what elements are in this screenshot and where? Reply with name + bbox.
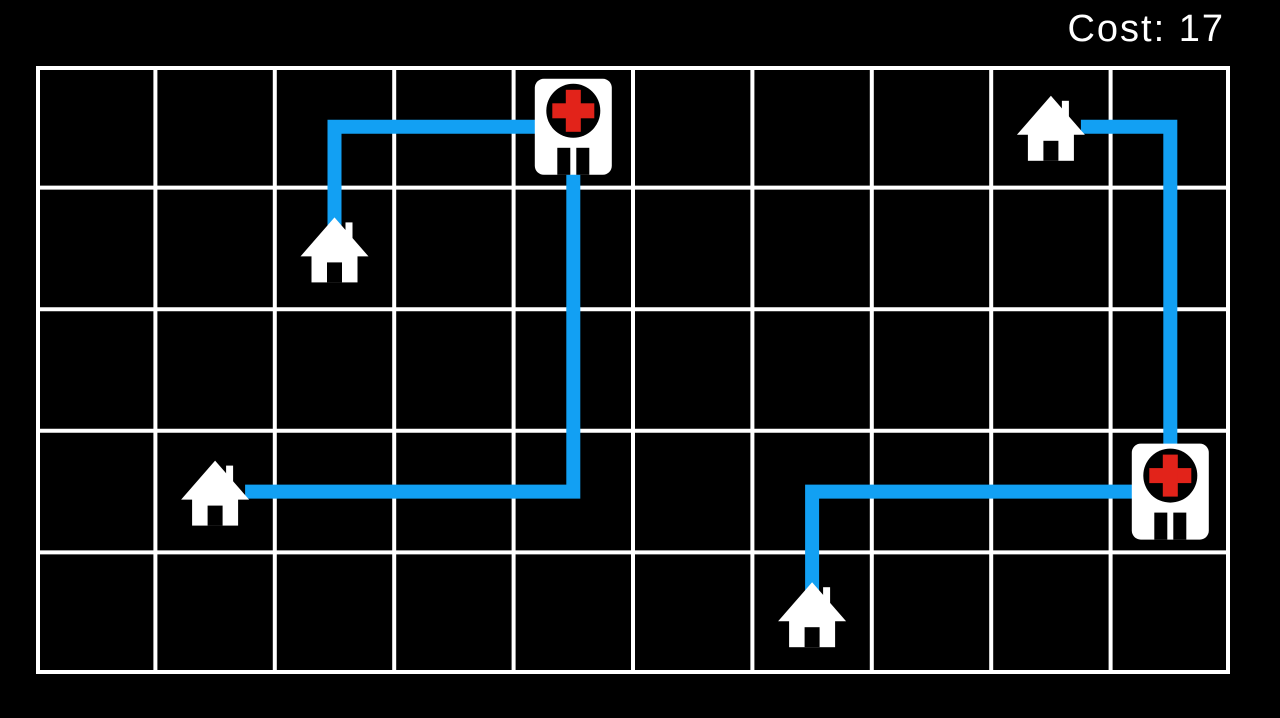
game-screen: Cost: 17 [0,0,1280,718]
house-icon[interactable] [181,461,249,526]
game-board[interactable] [36,66,1230,674]
board-svg[interactable] [36,66,1230,674]
house-icon[interactable] [778,582,846,647]
house-icon[interactable] [1017,96,1085,161]
hospital-icon[interactable] [1132,444,1209,540]
house-icon[interactable] [301,217,369,282]
hospital-icon[interactable] [535,79,612,175]
cost-display: Cost: 17 [1067,8,1225,51]
